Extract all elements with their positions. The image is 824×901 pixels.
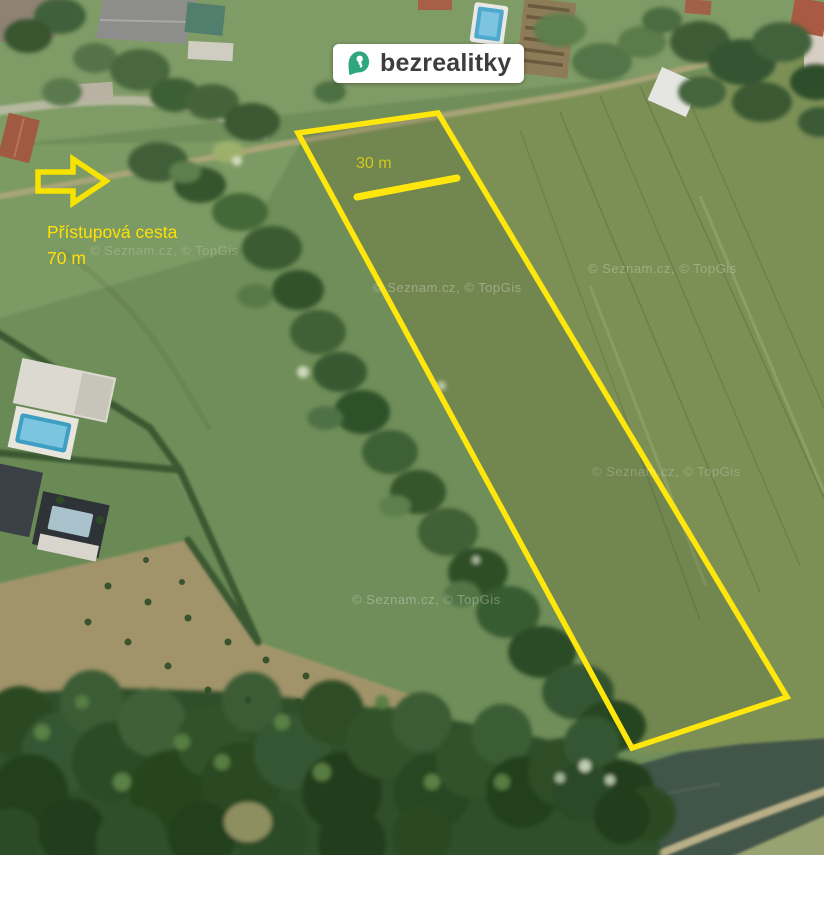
bezrealitky-logo-badge: bezrealitky — [333, 44, 524, 83]
watermark: © Seznam.cz, © TopGis — [373, 280, 522, 295]
swimming-pool-top — [469, 2, 508, 46]
measure-label-30m: 30 m — [356, 155, 392, 173]
watermark: © Seznam.cz, © TopGis — [592, 464, 741, 479]
watermark: © Seznam.cz, © TopGis — [588, 261, 737, 276]
aerial-photo — [0, 0, 824, 855]
access-road-label-line1: Přístupová cesta — [47, 219, 177, 245]
access-road-label-line2: 70 m — [47, 245, 177, 271]
bezrealitky-logo-text: bezrealitky — [380, 49, 511, 78]
teal-roof — [185, 2, 226, 36]
listing-map-screenshot: © Seznam.cz, © TopGis © Seznam.cz, © Top… — [0, 0, 824, 901]
watermark: © Seznam.cz, © TopGis — [352, 592, 501, 607]
access-road-label: Přístupová cesta 70 m — [47, 219, 177, 271]
bezrealitky-pin-icon — [346, 50, 371, 77]
